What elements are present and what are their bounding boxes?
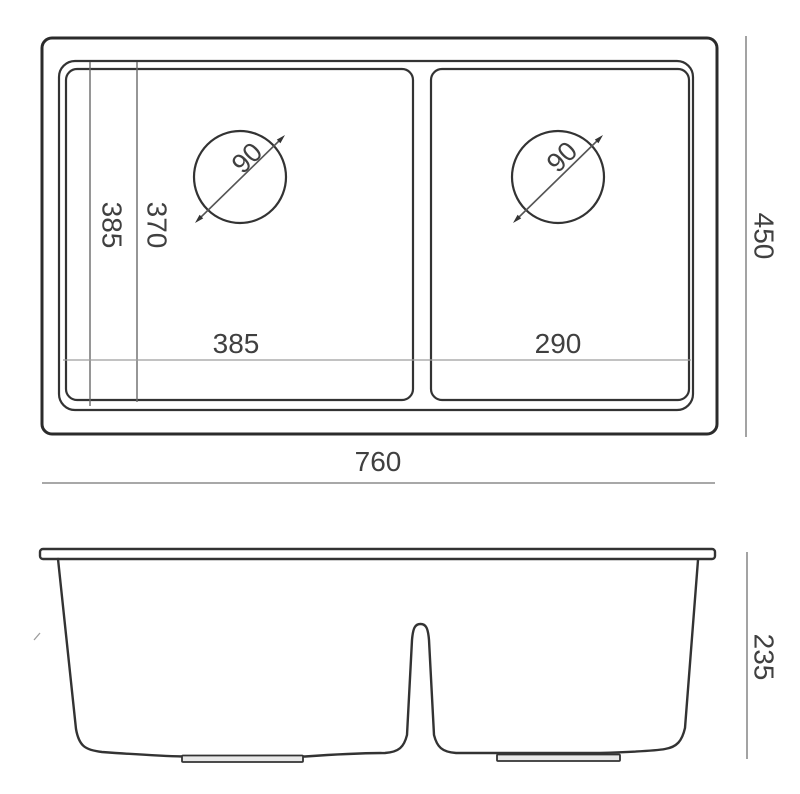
overall-width-label: 760: [355, 446, 402, 477]
front-view: 235: [34, 549, 780, 762]
left-tick-mark: [34, 633, 40, 640]
sink-technical-drawing: 90 90 385 290 385 370 760 450 235: [0, 0, 800, 794]
right-drain-diameter-label: 90: [541, 136, 583, 178]
left-foot-pad: [182, 756, 303, 763]
inner-vertical-dim-label: 370: [142, 202, 173, 249]
overall-depth-label: 450: [749, 213, 780, 260]
front-basin-outline: [58, 559, 698, 757]
right-foot-pad: [497, 755, 620, 762]
top-view: 90 90 385 290 385 370 760 450: [42, 36, 780, 483]
front-rim-bar: [40, 549, 715, 559]
right-bowl-width-label: 290: [535, 328, 582, 359]
left-bowl-width-label: 385: [213, 328, 260, 359]
left-vertical-dim-label: 385: [97, 202, 128, 249]
overall-height-label: 235: [749, 634, 780, 681]
left-drain-diameter-label: 90: [226, 137, 268, 179]
